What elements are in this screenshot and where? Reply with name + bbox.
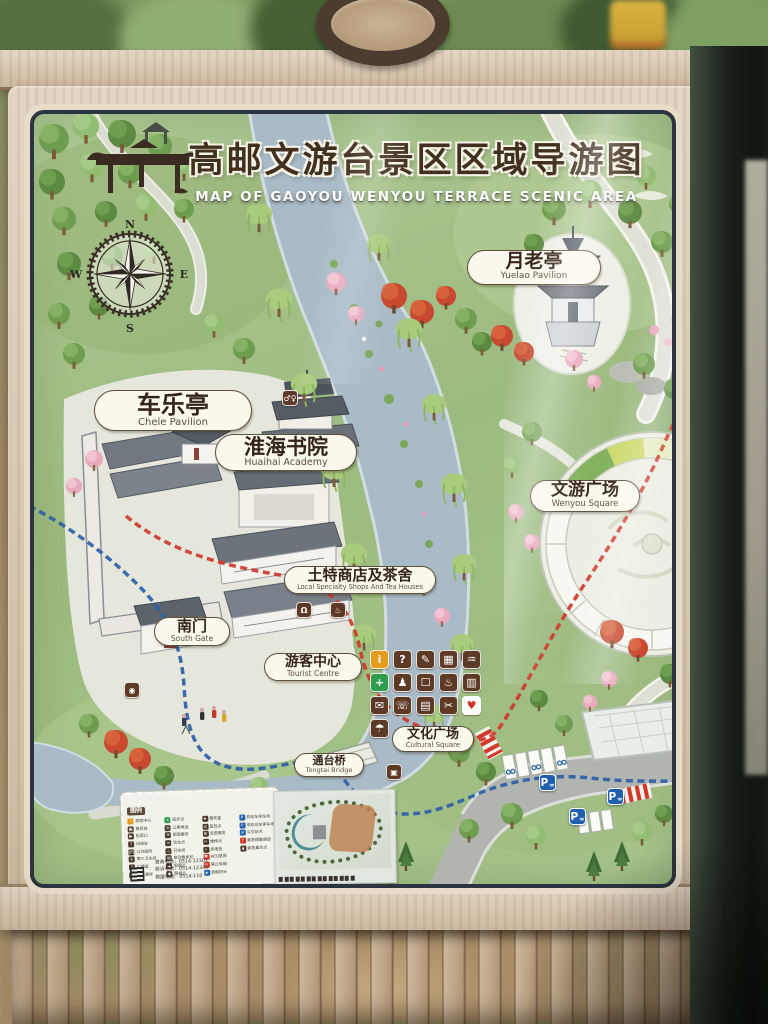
legend-item: ≡ 公交站点 — [239, 829, 273, 836]
label-en: Chele Pavilion — [101, 417, 245, 428]
background-right-strip — [745, 160, 768, 775]
legend-item: P 机动车停车场 — [239, 813, 273, 820]
legend-item-label: 紧急疏散通道 — [247, 837, 271, 843]
service-icon-glyph: + — [375, 676, 384, 689]
photo-spot-icon: ◉ — [124, 682, 140, 698]
inset-aerial-view — [278, 794, 391, 870]
service-icon: ▥ — [462, 673, 481, 692]
legend-item-icon: ♿ — [129, 857, 135, 863]
map-label-huaihai-academy: 淮海书院 Huaihai Academy — [215, 434, 357, 471]
label-en: Wenyou Square — [537, 500, 633, 509]
parking-sign: P∞ — [607, 788, 624, 805]
legend-item-label: 机动车停车场 — [246, 814, 270, 820]
legend-item: ⊘ 禁止吸烟 — [203, 861, 237, 868]
compass-s: S — [126, 322, 134, 335]
background-structure — [610, 0, 666, 50]
legend-item-label: 检票口 — [135, 834, 147, 840]
label-cn: 土特商店及茶舍 — [291, 568, 429, 584]
legend-item-icon: ✂ — [203, 839, 209, 845]
legend-title: 图例 — [127, 807, 145, 816]
corner-shadow — [518, 834, 768, 1024]
legend-item-label: 充电桩 — [210, 846, 222, 852]
map-label-wenyou-square: 文游广场 Wenyou Square — [530, 480, 640, 512]
legend-item: ◈ 游船码头 — [204, 869, 238, 876]
legend-item-icon: ⚡ — [203, 846, 209, 852]
legend-item-label: 邮政服务 — [173, 832, 189, 838]
service-icon: ▤ — [416, 696, 435, 715]
service-icon-glyph: ♟ — [398, 676, 408, 689]
legend-item-icon: ↑ — [240, 838, 246, 844]
legend-item-icon: ♟ — [240, 845, 246, 851]
parking-letter: P — [540, 777, 548, 789]
legend-item-label: 警务室 — [209, 816, 221, 822]
bicycle-icon: ∞ — [579, 815, 584, 823]
label-en: South Gate — [161, 635, 223, 643]
bicycle-icon: ∞ — [617, 795, 622, 803]
label-en: Huaihai Academy — [222, 458, 350, 468]
service-icon-glyph: ☂ — [375, 722, 385, 735]
inset-highlight-zone — [327, 804, 375, 854]
service-icon: ☐ — [416, 673, 435, 692]
service-icon: ☂ — [370, 719, 389, 738]
legend-item-icon: ♂♀ — [128, 849, 134, 855]
map-label-chele-pavilion: 车乐亭 Chele Pavilion — [94, 390, 252, 431]
parking-sign: P∞ — [539, 774, 556, 791]
legend-item: ◎ 监控点 — [202, 822, 236, 829]
legend-item: ♨ 开水间 — [166, 847, 200, 854]
legend-column: P 机动车停车场 P 非机动车停车场 ≡ 公交站点 — [239, 813, 275, 876]
legend-item-icon: ★ — [202, 816, 208, 822]
label-cn: 南门 — [161, 619, 223, 635]
service-icon: + — [370, 673, 389, 692]
inset-building — [312, 825, 326, 840]
map-label-tourist-centre: 游客中心 Tourist Centre — [264, 653, 362, 681]
parking-letter: P — [608, 791, 616, 803]
restroom-icon: ♂♀ — [282, 390, 298, 406]
service-icon-glyph: ✉ — [375, 699, 384, 712]
legend-item: ↑ 紧急疏散通道 — [240, 837, 274, 844]
label-cn: 通台桥 — [301, 755, 357, 767]
legend-item-icon: ? — [128, 841, 134, 847]
label-en: Tourist Centre — [271, 670, 355, 678]
legend-item: + 医疗点 — [165, 816, 199, 823]
legend-item: ▣ 售票处 — [128, 825, 162, 832]
service-point-icon: ▣ — [386, 764, 402, 780]
parking-letter: P — [570, 811, 578, 823]
service-icon: ♨ — [439, 673, 458, 692]
legend-item: ★ 警务室 — [202, 815, 236, 822]
legend-item-label: 游船码头 — [211, 869, 227, 875]
service-icon-glyph: ☐ — [421, 676, 431, 689]
map-poster: N S E W 高邮文游台景区区域导游图 MAP OF GAOYOU WENYO… — [30, 110, 676, 888]
legend-item-icon: ▣ — [128, 826, 134, 832]
label-cn: 车乐亭 — [101, 392, 245, 417]
parking-sign: P∞ — [569, 808, 586, 825]
legend-item-label: 公交站点 — [247, 830, 263, 836]
map-label-south-gate: 南门 South Gate — [154, 617, 230, 646]
service-icon-glyph: ? — [399, 653, 405, 666]
legend-item-label: AED急救 — [211, 854, 227, 860]
service-icon: i — [370, 650, 389, 669]
service-icon: ✉ — [370, 696, 389, 715]
map-label-yuelao-pavilion: 月老亭 Yuelao Pavilion — [467, 250, 601, 285]
phone-line: 救援电话：0514-110 — [155, 872, 208, 881]
qr-code — [130, 867, 144, 881]
legend-item: ♟ 紧急集合点 — [240, 844, 274, 851]
shopping-icon: Ω — [296, 602, 312, 618]
lotus-white — [362, 337, 366, 341]
legend-item-icon: ≡ — [239, 830, 245, 836]
legend-phone-numbers: 咨询电话：0514-12301投诉电话：0514-12345救援电话：0514-… — [155, 858, 209, 882]
label-cn: 月老亭 — [474, 252, 594, 272]
service-icon: ▦ — [439, 650, 458, 669]
service-icon: ☏ — [393, 696, 412, 715]
service-icon-glyph: ✂ — [444, 699, 453, 712]
service-icon: ✂ — [439, 696, 458, 715]
legend-item-label: 公用电话 — [172, 824, 188, 830]
legend-item-label: 游客中心 — [135, 818, 151, 824]
service-icon-glyph: ♒ — [467, 653, 477, 666]
label-cn: 淮海书院 — [222, 436, 350, 458]
legend-item-label: 开水间 — [173, 848, 185, 854]
legend-item: P 非机动车停车场 — [239, 821, 273, 828]
legend-item-label: 第三卫生间 — [136, 856, 156, 862]
legend-item-label: 公共厕所 — [136, 849, 152, 855]
inset-icon-row — [279, 875, 393, 882]
teahouse-icon: ♨ — [330, 602, 346, 618]
service-icon: ✎ — [416, 650, 435, 669]
label-cn: 游客中心 — [271, 655, 355, 670]
compass-e: E — [180, 268, 188, 281]
legend-item-icon: P — [239, 814, 245, 820]
service-icon-grid: i ? ✎ ▦ ♒ + — [370, 650, 484, 738]
service-icon-glyph: ▥ — [466, 676, 476, 689]
legend-item: ⚡ 充电桩 — [203, 845, 237, 852]
legend-item-icon: P — [239, 822, 245, 828]
legend-item-label: 医疗点 — [172, 817, 184, 823]
legend-item-label: 非机动车停车场 — [247, 821, 275, 827]
legend-item-icon: + — [165, 817, 171, 823]
service-icon: ♥ — [462, 696, 481, 715]
service-icon-glyph: ♥ — [467, 699, 477, 712]
legend-item-label: 监控点 — [210, 823, 222, 829]
legend-item-label: 禁止吸烟 — [211, 862, 227, 868]
label-en: Tongtai Bridge — [301, 767, 357, 774]
legend-item-icon: ◎ — [202, 823, 208, 829]
service-icon-glyph: ✎ — [421, 653, 430, 666]
legend-item: ✉ 邮政服务 — [165, 831, 199, 838]
legend-item: ♂♀ 公共厕所 — [128, 848, 162, 855]
legend-item-label: 问询处 — [136, 841, 148, 847]
legend-item: ☏ 公用电话 — [165, 824, 199, 831]
legend-item-label: 维修点 — [210, 839, 222, 845]
legend-item: ▶ 检票口 — [128, 833, 162, 840]
legend-item-label: 饮水点 — [173, 840, 185, 846]
map-label-tongtai-bridge: 通台桥 Tongtai Bridge — [294, 753, 364, 777]
service-icon: ♟ — [393, 673, 412, 692]
service-icon-glyph: ♨ — [444, 676, 454, 689]
legend-item: ♥ AED急救 — [203, 853, 237, 860]
service-icon-glyph: i — [378, 653, 382, 666]
service-icon: ? — [393, 650, 412, 669]
legend-item: i 游客中心 — [127, 817, 161, 824]
legend-item-icon: i — [127, 818, 133, 824]
legend-panel: 图例 i 游客中心 ▣ 售票处 — [120, 787, 281, 888]
bicycle-icon: ∞ — [549, 781, 554, 789]
legend-item: ? 问询处 — [128, 840, 162, 847]
legend-item: ✿ 志愿服务 — [202, 830, 236, 837]
legend-item: ✂ 维修点 — [203, 838, 237, 845]
legend-item-icon: ▶ — [128, 834, 134, 840]
label-en: Local Specialty Shops And Tea Houses — [291, 584, 429, 591]
legend-item-icon: ✿ — [202, 831, 208, 837]
legend-item-icon: ♒ — [165, 840, 171, 846]
service-icon-glyph: ▤ — [420, 699, 430, 712]
service-icon-glyph: ☏ — [396, 699, 410, 712]
service-icon: ♒ — [462, 650, 481, 669]
legend-item-icon: ✉ — [165, 832, 171, 838]
legend-item-label: 售票处 — [135, 826, 147, 832]
overview-inset-map — [273, 789, 397, 885]
legend-item-label: 紧急集合点 — [248, 845, 268, 851]
compass-n: N — [125, 218, 135, 231]
map-label-specialty-shops: 土特商店及茶舍 Local Specialty Shops And Tea Ho… — [284, 566, 436, 594]
legend-item-label: 志愿服务 — [210, 831, 226, 837]
legend-item: ♒ 饮水点 — [165, 839, 199, 846]
label-en: Cultural Square — [399, 742, 467, 750]
service-icon-glyph: ▦ — [443, 653, 453, 666]
legend-item-icon: ♨ — [166, 848, 172, 854]
legend-item-icon: ☏ — [165, 825, 171, 831]
label-cn: 文游广场 — [537, 482, 633, 500]
label-en: Yuelao Pavilion — [474, 272, 594, 282]
photo-of-map-sign: N S E W 高邮文游台景区区域导游图 MAP OF GAOYOU WENYO… — [0, 0, 768, 1024]
compass-w: W — [69, 268, 83, 281]
